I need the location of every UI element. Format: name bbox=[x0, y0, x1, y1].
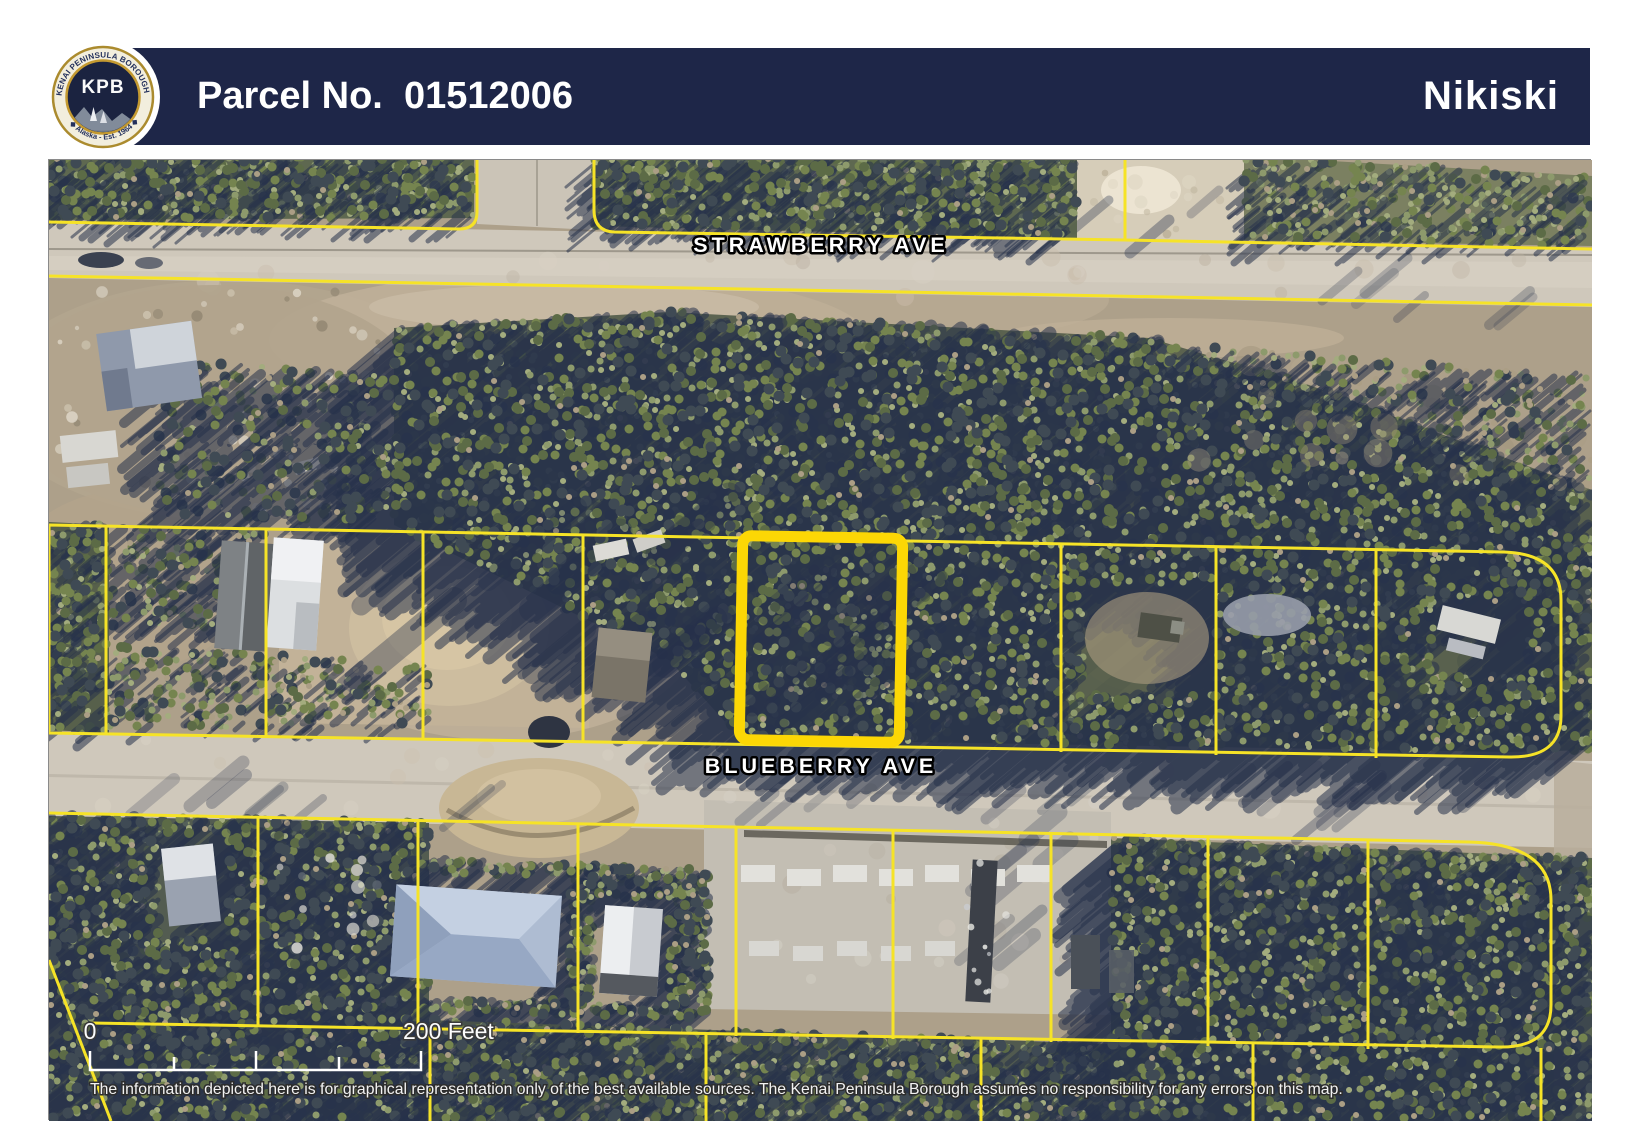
svg-text:KPB: KPB bbox=[81, 77, 124, 98]
svg-text:STRAWBERRY AVE: STRAWBERRY AVE bbox=[693, 233, 949, 257]
svg-text:200 Feet: 200 Feet bbox=[403, 1018, 494, 1044]
svg-text:The information depicted here: The information depicted here is for gra… bbox=[90, 1081, 1343, 1098]
svg-text:0: 0 bbox=[84, 1018, 97, 1044]
svg-text:BLUEBERRY AVE: BLUEBERRY AVE bbox=[705, 754, 937, 778]
